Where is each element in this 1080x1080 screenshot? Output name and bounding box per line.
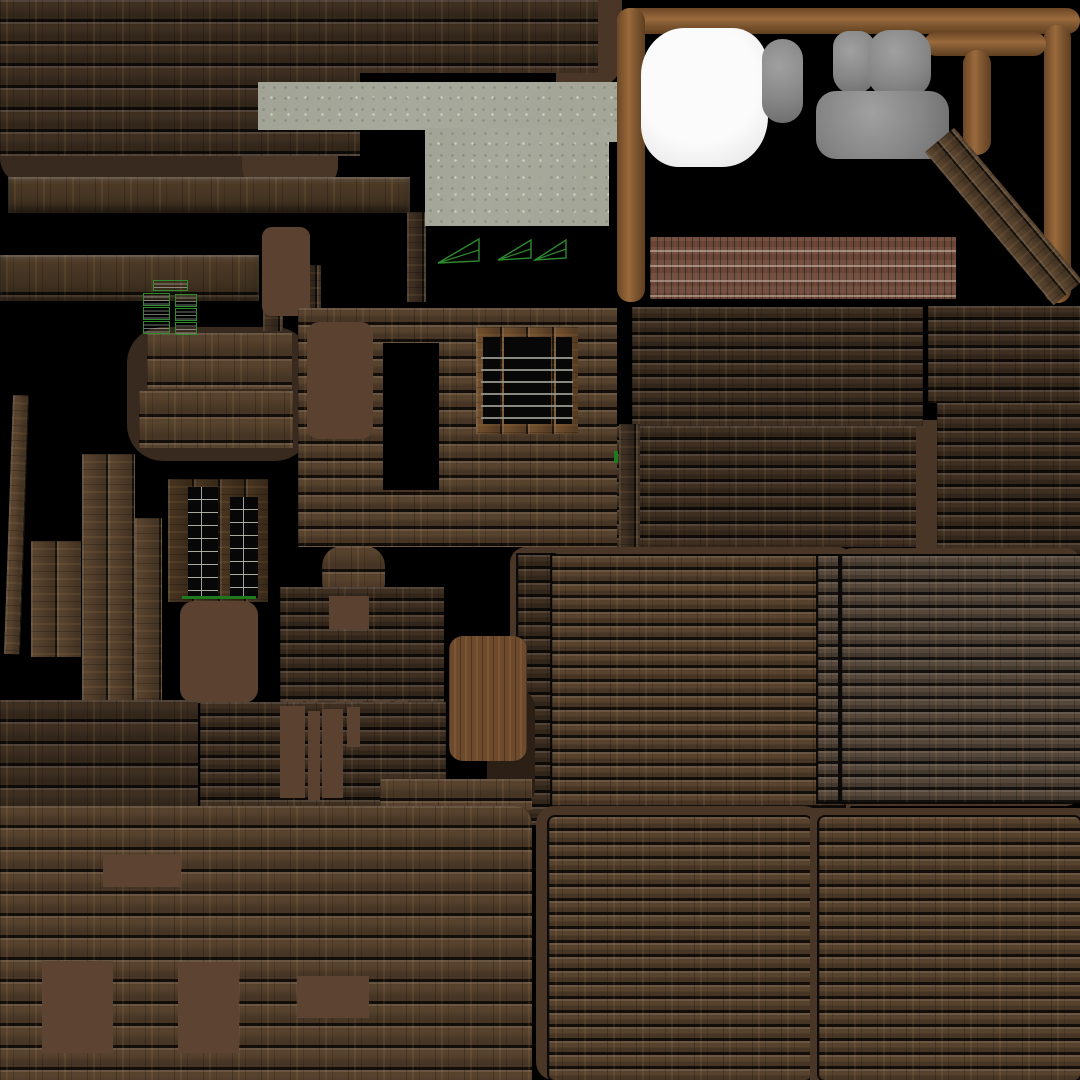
panel-d-bar-4 (347, 707, 360, 747)
wireframe-triangle-3 (533, 238, 568, 263)
right-panel (842, 556, 1080, 802)
vstrip-right-of-block (619, 424, 640, 563)
panel-b (928, 306, 1080, 403)
shutter-pane-left (188, 487, 218, 597)
bl-cut-2 (42, 961, 113, 1053)
gray-blob-small (762, 39, 803, 123)
panel-d-bar-1 (280, 706, 305, 798)
wood-knob (322, 546, 385, 590)
bl-cut-4 (297, 976, 369, 1018)
tilted-plank (4, 395, 29, 654)
post-1 (407, 212, 426, 302)
wireframe-ladder-r3 (175, 322, 197, 335)
shutter-green-line (182, 596, 256, 599)
tall-verticals (82, 454, 135, 701)
bottommid-panel (549, 817, 811, 1080)
flat-brown-top (262, 227, 310, 316)
wireframe-ladder-l3 (143, 321, 170, 334)
wireframe-ladder-l1 (143, 293, 170, 306)
concrete-block (425, 128, 609, 226)
wireframe-triangle-2 (496, 238, 533, 263)
wireframe-ladder-r2 (175, 308, 197, 321)
panel-d-bar-3 (322, 709, 343, 798)
window-shutter (168, 479, 268, 602)
short-verticals (31, 541, 81, 657)
door (449, 636, 527, 761)
shutter-pane-right (230, 497, 258, 598)
panel-k-cut-1 (329, 596, 369, 629)
window-block-hole (383, 343, 439, 490)
right-panel-col (818, 556, 838, 802)
beam-1 (8, 177, 410, 213)
frame-left-bar (617, 8, 645, 302)
concrete-slab (258, 82, 624, 130)
plank-row-1 (147, 333, 292, 389)
bl-cut-1 (103, 855, 181, 887)
white-blob (641, 28, 768, 167)
panel-c (0, 700, 198, 810)
wireframe-ladder-l2 (143, 307, 170, 320)
flat-brown-on-block (307, 322, 373, 439)
wireframe-triangle-1 (436, 237, 481, 266)
frame-t-stem (963, 50, 991, 155)
panel-d-bar-2 (308, 711, 320, 800)
gray-lump-2 (868, 30, 931, 97)
brick-strip (650, 237, 956, 299)
window-slats (481, 347, 573, 419)
green-mark (614, 451, 618, 463)
texture-atlas (0, 0, 1080, 1080)
panel-b2 (937, 403, 1080, 560)
window-frame (476, 327, 578, 434)
bottomright-panel (819, 817, 1080, 1080)
center-panel (552, 556, 844, 806)
flat-brown-midleft (180, 601, 258, 703)
tall-verticals-2 (135, 518, 162, 700)
wireframe-ladder-top (153, 280, 188, 291)
topleft-wood-upper (0, 0, 598, 73)
beam-2 (0, 255, 259, 301)
panel-a2 (613, 426, 916, 547)
bl-cut-3 (178, 962, 239, 1053)
plank-row-2 (139, 391, 293, 448)
wireframe-ladder-r1 (175, 294, 197, 307)
panel-a (632, 307, 923, 426)
